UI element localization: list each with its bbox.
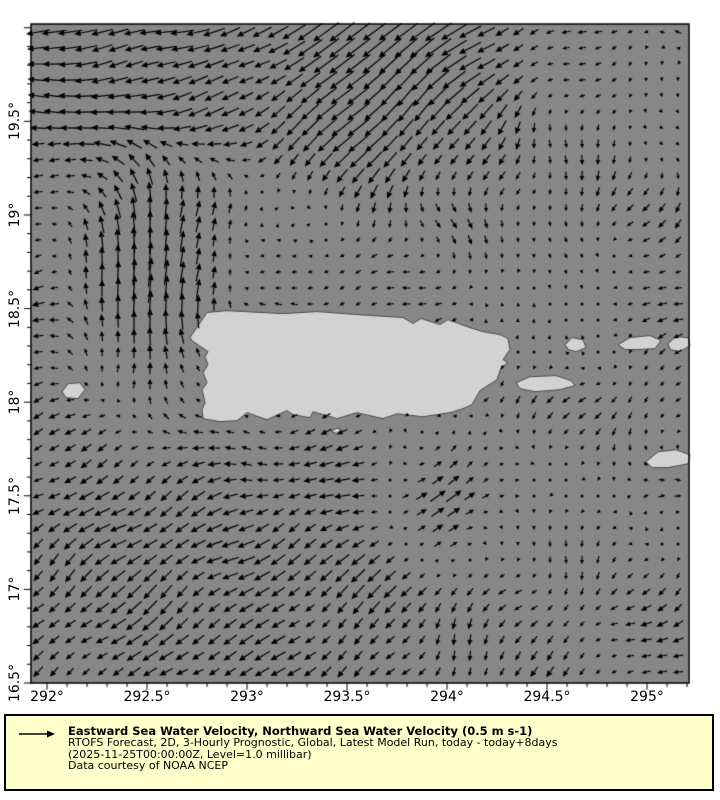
x-tick-label: 295° bbox=[630, 689, 664, 705]
y-tick-label: 17.5° bbox=[7, 477, 23, 515]
y-tick-label: 18.5° bbox=[7, 289, 23, 327]
legend-subtitle: RTOFS Forecast, 2D, 3-Hourly Prognostic,… bbox=[68, 737, 558, 749]
legend-box: Eastward Sea Water Velocity, Northward S… bbox=[4, 714, 714, 791]
x-tick-label: 292.5° bbox=[123, 689, 170, 705]
x-tick-label: 292° bbox=[30, 689, 64, 705]
x-tick-label: 293.5° bbox=[323, 689, 370, 705]
x-tick-label: 294.5° bbox=[523, 689, 570, 705]
y-tick-label: 19° bbox=[7, 203, 23, 228]
y-tick-label: 18° bbox=[7, 390, 23, 415]
reference-arrow-icon bbox=[18, 729, 56, 739]
x-tick-label: 293° bbox=[230, 689, 264, 705]
y-tick-label: 17° bbox=[7, 577, 23, 602]
y-tick-label: 16.5° bbox=[7, 664, 23, 702]
velocity-vector-map bbox=[0, 0, 720, 800]
y-tick-label: 19.5° bbox=[7, 102, 23, 140]
x-tick-label: 294° bbox=[430, 689, 464, 705]
graph-page: 292°292.5°293°293.5°294°294.5°295°16.5°1… bbox=[0, 0, 720, 800]
legend-credit: Data courtesy of NOAA NCEP bbox=[68, 760, 558, 772]
